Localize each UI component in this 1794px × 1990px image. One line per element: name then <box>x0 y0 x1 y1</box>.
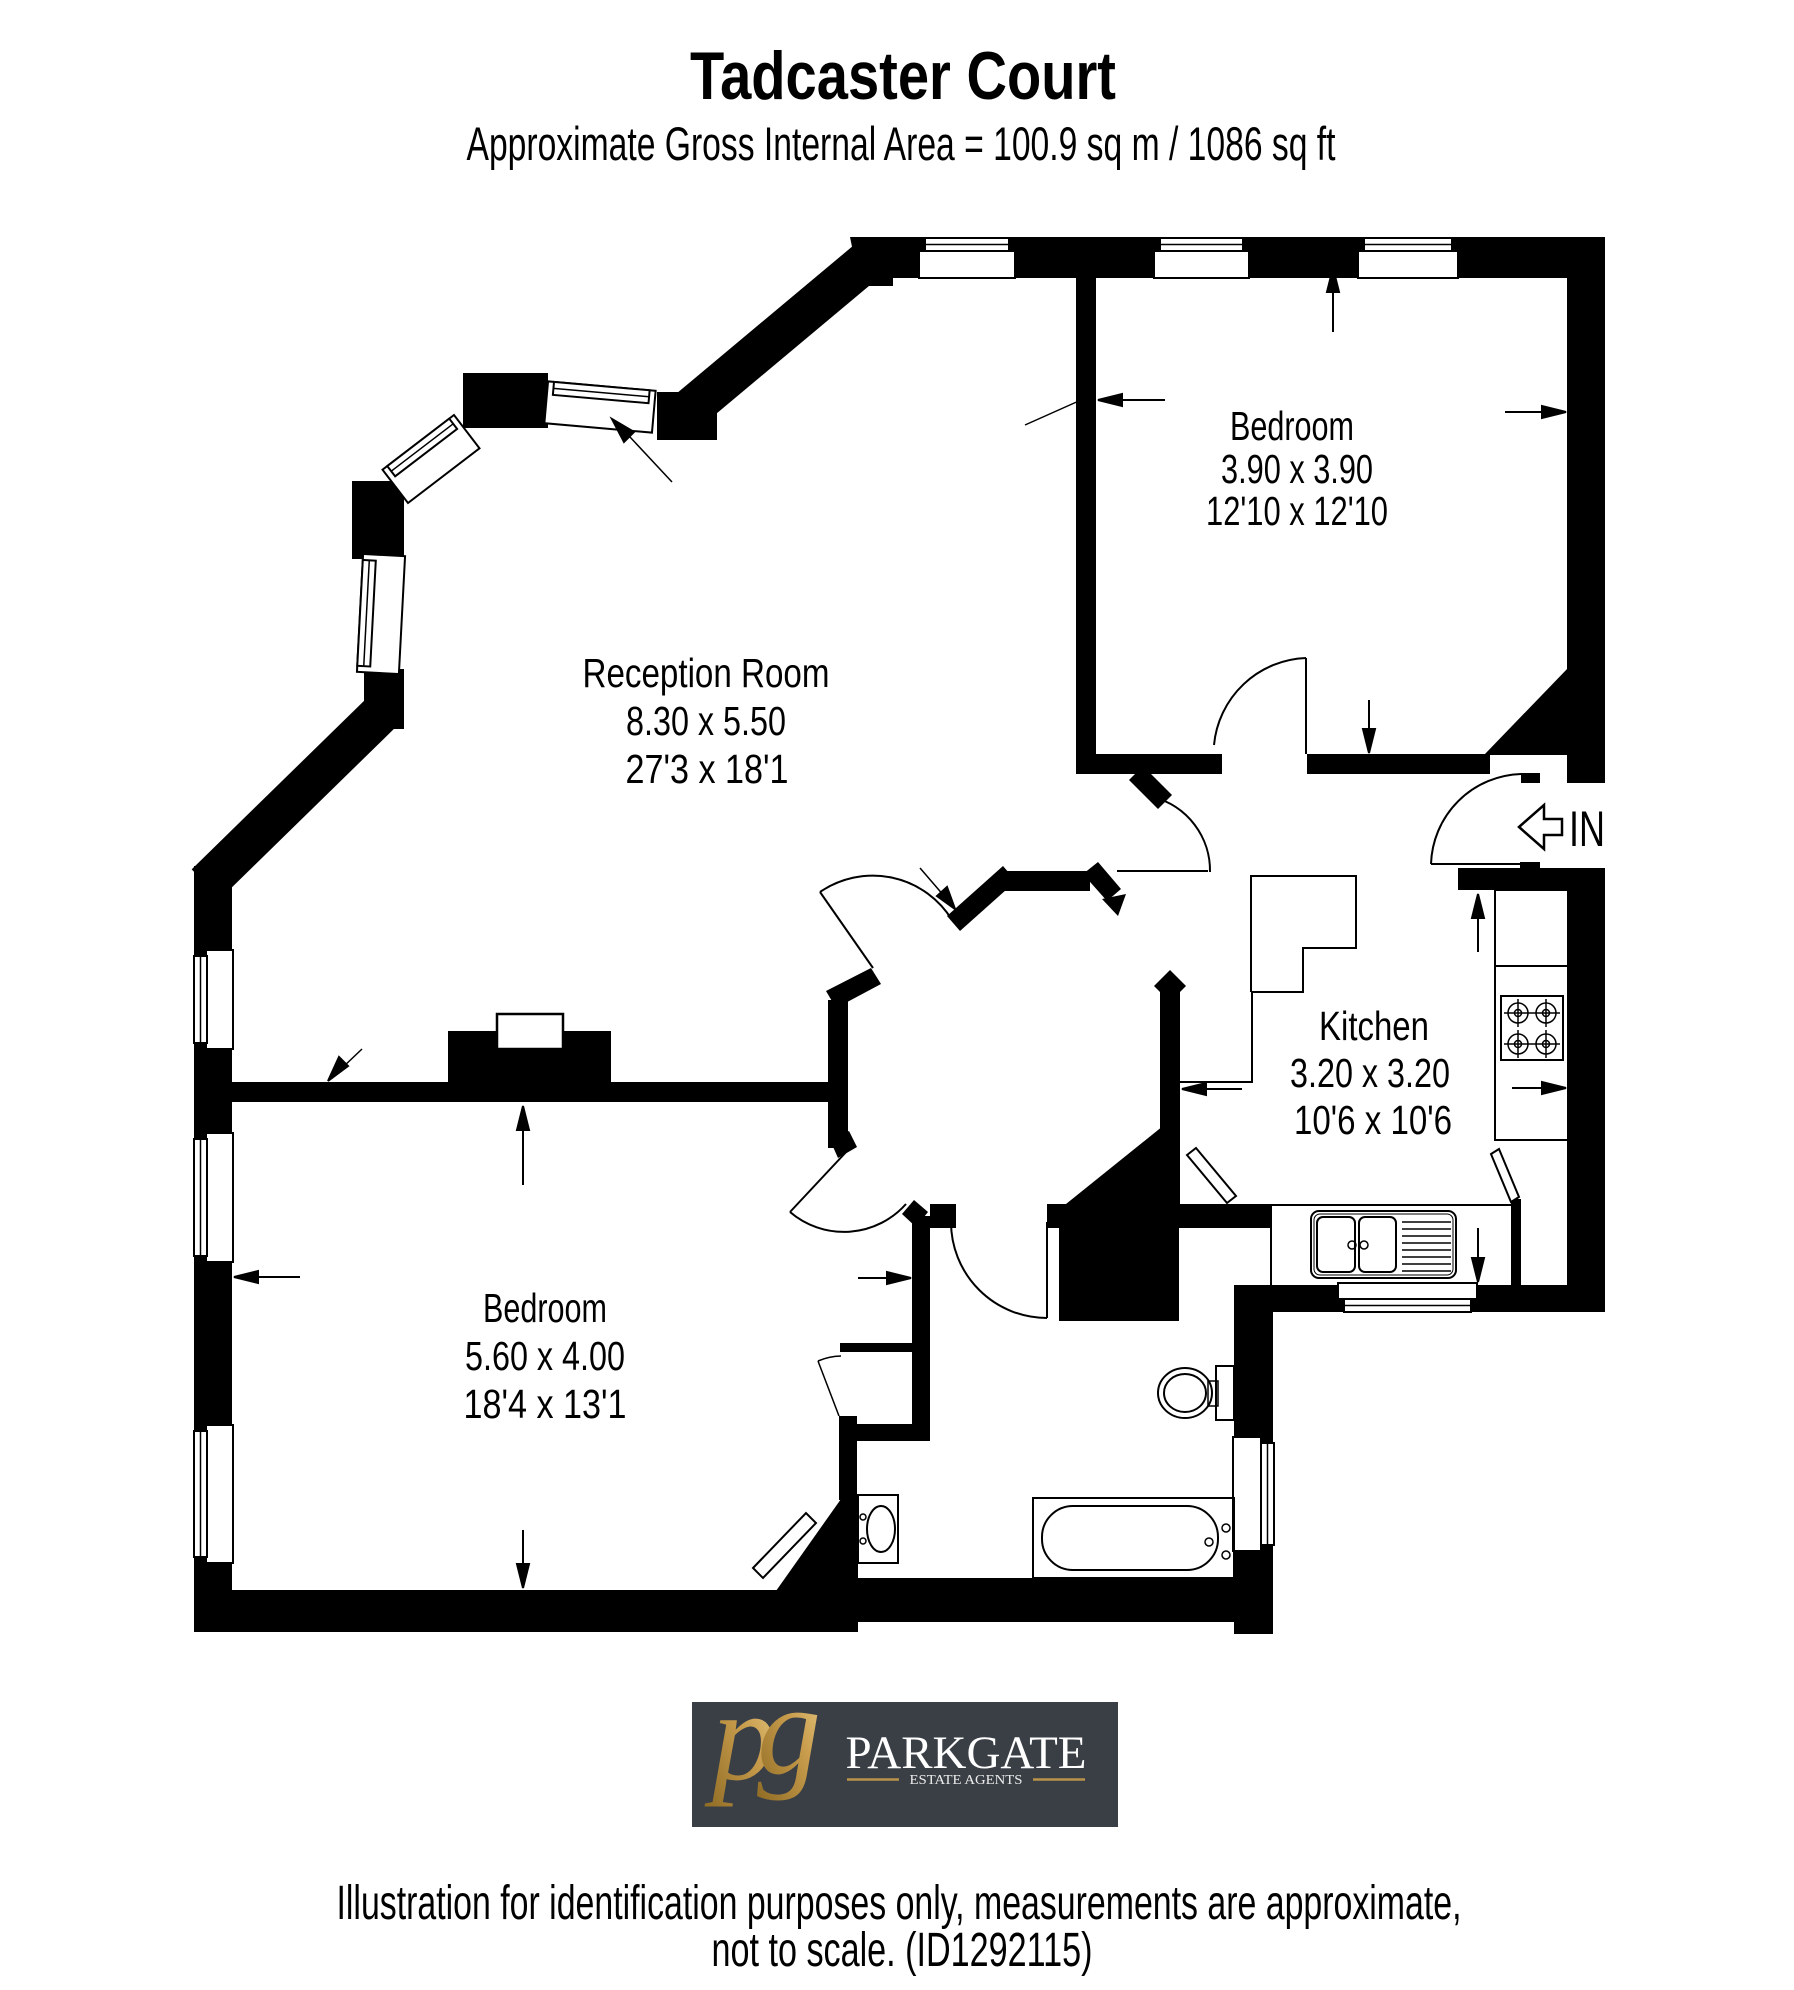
svg-text:IN: IN <box>1569 801 1605 857</box>
svg-text:Approximate Gross Internal Are: Approximate Gross Internal Area = 100.9 … <box>467 117 1336 170</box>
svg-text:3.20 x 3.20: 3.20 x 3.20 <box>1290 1050 1450 1096</box>
svg-text:18'4 x 13'1: 18'4 x 13'1 <box>464 1381 627 1427</box>
svg-text:Tadcaster Court: Tadcaster Court <box>690 38 1116 114</box>
svg-text:5.60 x 4.00: 5.60 x 4.00 <box>465 1333 625 1379</box>
svg-text:g: g <box>757 1659 821 1801</box>
svg-text:3.90 x 3.90: 3.90 x 3.90 <box>1221 446 1373 492</box>
svg-text:10'6 x 10'6: 10'6 x 10'6 <box>1294 1097 1452 1143</box>
svg-text:Bedroom: Bedroom <box>483 1285 607 1331</box>
svg-text:8.30 x 5.50: 8.30 x 5.50 <box>626 698 786 744</box>
svg-text:ESTATE AGENTS: ESTATE AGENTS <box>910 1772 1023 1787</box>
svg-text:not to scale. (ID1292115): not to scale. (ID1292115) <box>712 1924 1093 1977</box>
svg-text:12'10 x 12'10: 12'10 x 12'10 <box>1206 488 1388 534</box>
svg-text:Bedroom: Bedroom <box>1230 403 1354 449</box>
svg-text:Kitchen: Kitchen <box>1319 1003 1429 1049</box>
svg-text:Illustration for identificatio: Illustration for identification purposes… <box>337 1877 1462 1930</box>
svg-text:Reception Room: Reception Room <box>583 650 830 696</box>
svg-text:27'3 x 18'1: 27'3 x 18'1 <box>626 746 789 792</box>
